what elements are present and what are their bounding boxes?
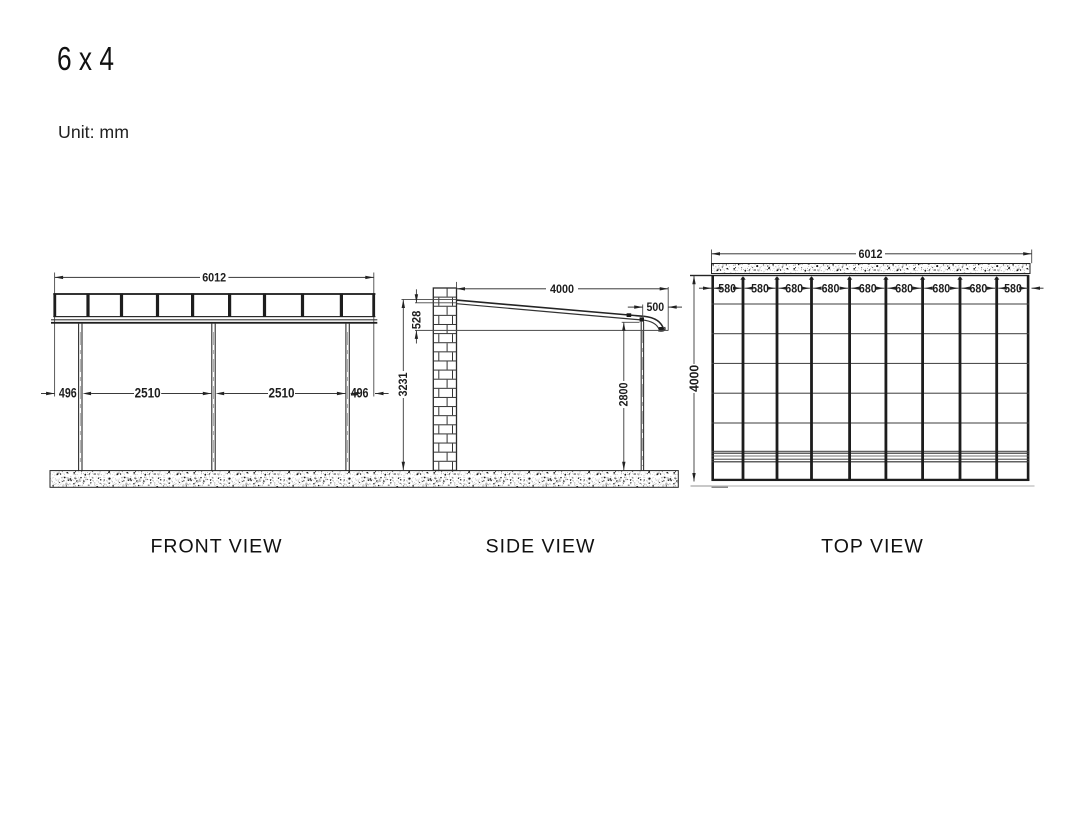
svg-text:6 x 4: 6 x 4 bbox=[57, 41, 114, 78]
svg-text:580: 580 bbox=[1004, 283, 1022, 295]
svg-text:Unit: mm: Unit: mm bbox=[58, 122, 129, 142]
svg-text:680: 680 bbox=[895, 283, 913, 295]
svg-text:2510: 2510 bbox=[269, 386, 295, 401]
svg-text:FRONT VIEW: FRONT VIEW bbox=[150, 536, 282, 558]
svg-text:2800: 2800 bbox=[617, 382, 631, 406]
svg-text:528: 528 bbox=[411, 310, 423, 329]
svg-text:680: 680 bbox=[822, 283, 840, 295]
svg-text:680: 680 bbox=[970, 283, 988, 295]
svg-text:496: 496 bbox=[59, 386, 77, 401]
svg-text:580: 580 bbox=[718, 283, 736, 295]
svg-text:500: 500 bbox=[647, 302, 665, 314]
svg-text:680: 680 bbox=[785, 283, 803, 295]
svg-text:680: 680 bbox=[932, 283, 950, 295]
svg-text:6012: 6012 bbox=[859, 247, 883, 261]
svg-text:SIDE VIEW: SIDE VIEW bbox=[486, 536, 596, 558]
svg-text:496: 496 bbox=[351, 386, 369, 401]
svg-text:TOP VIEW: TOP VIEW bbox=[821, 536, 924, 558]
svg-text:580: 580 bbox=[751, 283, 769, 295]
svg-text:680: 680 bbox=[859, 283, 877, 295]
svg-text:6012: 6012 bbox=[202, 271, 226, 285]
svg-text:4000: 4000 bbox=[686, 365, 701, 392]
svg-text:4000: 4000 bbox=[550, 282, 574, 296]
svg-text:3231: 3231 bbox=[396, 372, 410, 396]
svg-text:2510: 2510 bbox=[135, 386, 161, 401]
